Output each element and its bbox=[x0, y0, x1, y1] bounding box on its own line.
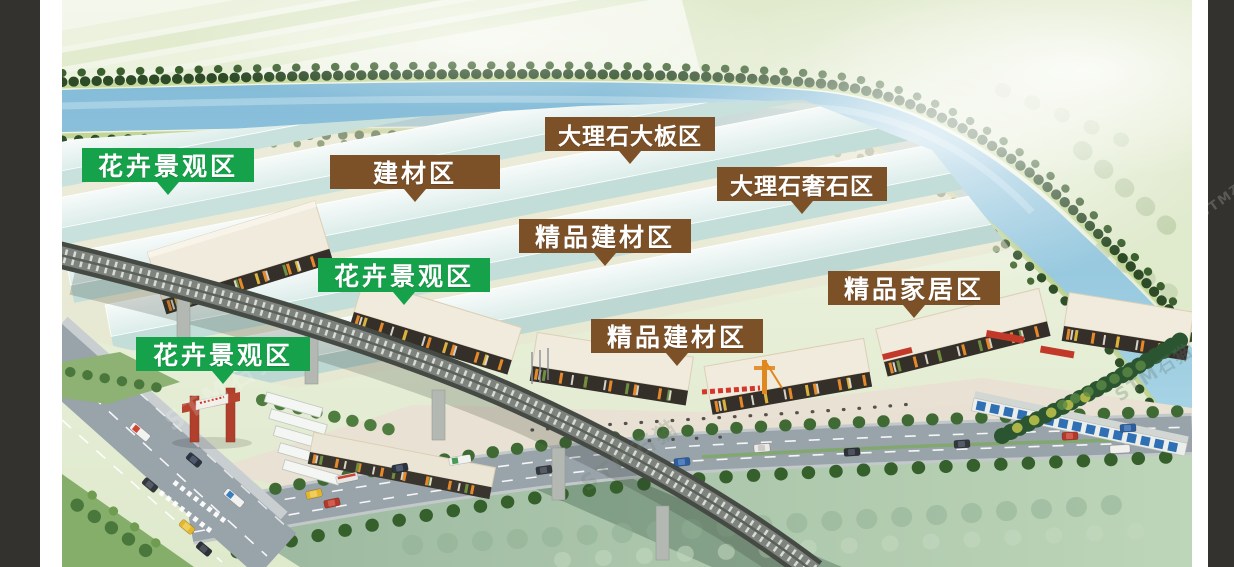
scene-illustration: STM石猫 STM石猫 STM石猫 bbox=[62, 0, 1192, 567]
zone-label-flower-zone-2: 花卉景观区 bbox=[318, 258, 490, 292]
zone-label-building-materials-zone: 建材区 bbox=[330, 155, 500, 189]
zone-label-text: 大理石奢石区 bbox=[730, 167, 874, 201]
zone-label-text: 精品建材区 bbox=[607, 318, 747, 354]
zone-label-marble-luxury-stone-zone: 大理石奢石区 bbox=[717, 167, 887, 201]
watermark-text: STM石猫 bbox=[1208, 167, 1234, 221]
zone-label-text: 花卉景观区 bbox=[153, 336, 293, 372]
right-dark-bar: STM石猫 bbox=[1208, 0, 1234, 567]
left-dark-bar bbox=[0, 0, 40, 567]
zone-label-flower-zone-3: 花卉景观区 bbox=[136, 337, 310, 371]
zone-label-text: 花卉景观区 bbox=[334, 257, 474, 293]
zone-label-premium-building-materials-zone-2: 精品建材区 bbox=[591, 319, 763, 353]
zone-label-text: 精品家居区 bbox=[844, 270, 984, 306]
render-content: STM石猫 STM石猫 STM石猫 花卉景观区 建材区 大理石大板区 大理石奢石… bbox=[62, 0, 1192, 567]
zone-label-marble-slab-zone: 大理石大板区 bbox=[545, 117, 715, 151]
aerial-render-screenshot: STM石猫 STM石猫 STM石猫 花卉景观区 建材区 大理石大板区 大理石奢石… bbox=[0, 0, 1234, 567]
zone-label-premium-home-zone: 精品家居区 bbox=[828, 271, 1000, 305]
zone-label-text: 花卉景观区 bbox=[98, 147, 238, 183]
zone-label-text: 精品建材区 bbox=[535, 218, 675, 254]
zone-label-text: 建材区 bbox=[373, 154, 457, 190]
zone-label-text: 大理石大板区 bbox=[558, 117, 702, 151]
zone-label-premium-building-materials-zone-1: 精品建材区 bbox=[519, 219, 691, 253]
zone-label-flower-zone-1: 花卉景观区 bbox=[82, 148, 254, 182]
